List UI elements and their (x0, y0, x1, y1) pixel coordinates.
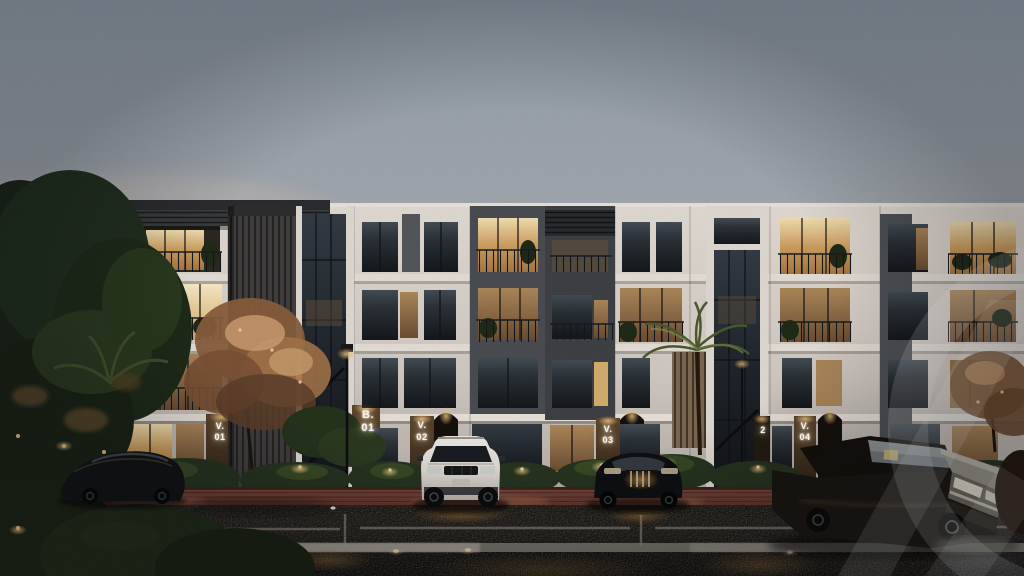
film-grain (0, 0, 1024, 576)
architectural-render: V. 01 B. 01 V. 02 V. 03 2 V. 04 (0, 0, 1024, 576)
unit-label-v01: V. 01 (204, 421, 236, 443)
scene-art (0, 0, 1024, 576)
unit-label-b02: 2 (755, 425, 771, 436)
unit-label-v03: V. 03 (594, 424, 622, 446)
unit-label-b01: B. 01 (351, 409, 385, 435)
unit-label-v04: V. 04 (791, 421, 819, 443)
unit-label-v02: V. 02 (407, 420, 437, 444)
